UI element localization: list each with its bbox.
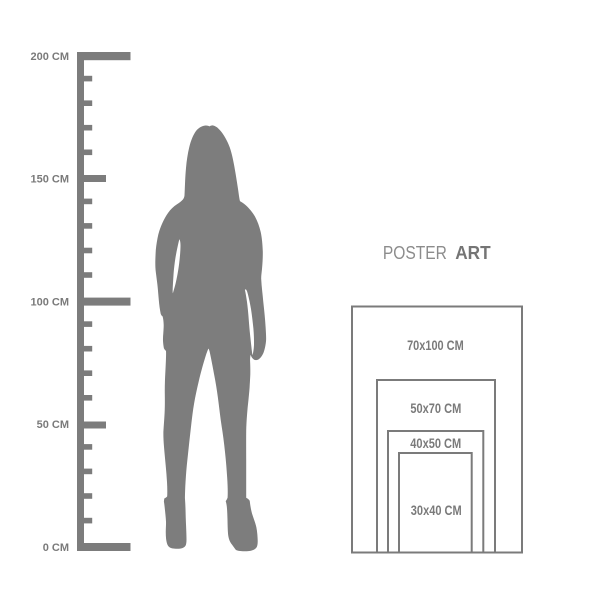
svg-text:ART: ART xyxy=(455,242,491,263)
svg-text:70x100 CM: 70x100 CM xyxy=(407,338,464,353)
svg-text:100 CM: 100 CM xyxy=(30,296,69,308)
svg-text:40x50 CM: 40x50 CM xyxy=(410,436,461,451)
svg-text:50 CM: 50 CM xyxy=(37,419,69,431)
svg-text:0 CM: 0 CM xyxy=(43,542,69,554)
svg-text:POSTER: POSTER xyxy=(383,242,447,263)
svg-text:200 CM: 200 CM xyxy=(30,51,69,63)
svg-text:30x40 CM: 30x40 CM xyxy=(411,503,462,518)
svg-text:150 CM: 150 CM xyxy=(30,174,69,186)
svg-text:50x70 CM: 50x70 CM xyxy=(410,401,461,416)
